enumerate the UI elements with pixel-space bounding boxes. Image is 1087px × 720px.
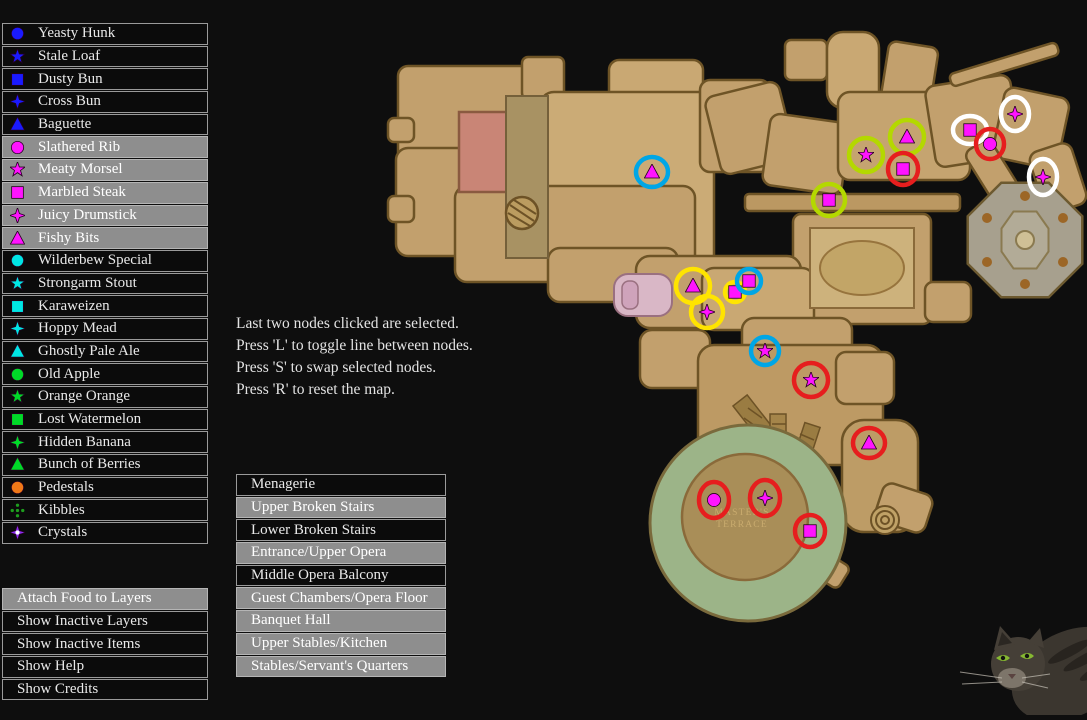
food-item-label: Old Apple bbox=[38, 367, 100, 382]
menu-item-label: Show Credits bbox=[17, 682, 98, 697]
menu-item-show-credits[interactable]: Show Credits bbox=[2, 679, 208, 701]
layer-item-label: Upper Stables/Kitchen bbox=[251, 636, 387, 651]
cross-icon bbox=[10, 94, 25, 109]
dots-icon bbox=[10, 503, 25, 518]
triangle-icon bbox=[10, 231, 25, 246]
square-icon bbox=[10, 185, 25, 200]
food-item-label: Hidden Banana bbox=[38, 435, 131, 450]
cross-icon bbox=[10, 435, 25, 450]
map-octagon-room bbox=[968, 183, 1083, 298]
layer-item-upper-broken-stairs[interactable]: Upper Broken Stairs bbox=[236, 497, 446, 519]
layer-item-label: Middle Opera Balcony bbox=[251, 568, 388, 583]
food-item-strongarm-stout[interactable]: Strongarm Stout bbox=[2, 273, 208, 295]
food-item-label: Karaweizen bbox=[38, 299, 110, 314]
cat-image bbox=[960, 608, 1087, 715]
food-item-hidden-banana[interactable]: Hidden Banana bbox=[2, 431, 208, 453]
menu-item-label: Attach Food to Layers bbox=[17, 591, 152, 606]
food-item-label: Lost Watermelon bbox=[38, 412, 141, 427]
food-item-label: Cross Bun bbox=[38, 94, 101, 109]
food-item-label: Dusty Bun bbox=[38, 72, 103, 87]
menu-item-label: Show Inactive Layers bbox=[17, 614, 148, 629]
food-item-label: Ghostly Pale Ale bbox=[38, 344, 140, 359]
food-item-bunch-of-berries[interactable]: Bunch of Berries bbox=[2, 454, 208, 476]
layer-item-menagerie[interactable]: Menagerie bbox=[236, 474, 446, 496]
food-item-label: Hoppy Mead bbox=[38, 321, 117, 336]
square-icon bbox=[10, 299, 25, 314]
circle-icon bbox=[10, 140, 25, 155]
food-item-label: Slathered Rib bbox=[38, 140, 120, 155]
layer-item-label: Banquet Hall bbox=[251, 613, 331, 628]
layer-item-guest-chambers-opera-floor[interactable]: Guest Chambers/Opera Floor bbox=[236, 587, 446, 609]
food-item-label: Stale Loaf bbox=[38, 49, 100, 64]
layer-item-label: Menagerie bbox=[251, 477, 315, 492]
food-item-label: Kibbles bbox=[38, 503, 85, 518]
map-dark-column bbox=[506, 96, 548, 258]
layer-item-upper-stables-kitchen[interactable]: Upper Stables/Kitchen bbox=[236, 633, 446, 655]
food-item-ghostly-pale-ale[interactable]: Ghostly Pale Ale bbox=[2, 341, 208, 363]
instruction-line: Press 'S' to swap selected nodes. bbox=[236, 357, 486, 379]
circle-icon bbox=[10, 480, 25, 495]
instruction-line: Press 'R' to reset the map. bbox=[236, 379, 486, 401]
layer-item-stables-servant-s-quarters[interactable]: Stables/Servant's Quarters bbox=[236, 656, 446, 678]
menu-item-attach-food-to-layers[interactable]: Attach Food to Layers bbox=[2, 588, 208, 610]
menu-item-label: Show Inactive Items bbox=[17, 637, 140, 652]
star-icon bbox=[10, 162, 25, 177]
food-item-label: Fishy Bits bbox=[38, 231, 99, 246]
food-item-label: Marbled Steak bbox=[38, 185, 126, 200]
food-item-hoppy-mead[interactable]: Hoppy Mead bbox=[2, 318, 208, 340]
food-list: Yeasty HunkStale LoafDusty BunCross BunB… bbox=[2, 23, 208, 545]
food-item-label: Orange Orange bbox=[38, 389, 130, 404]
food-item-label: Wilderbew Special bbox=[38, 253, 152, 268]
food-item-baguette[interactable]: Baguette bbox=[2, 114, 208, 136]
food-item-karaweizen[interactable]: Karaweizen bbox=[2, 295, 208, 317]
triangle-icon bbox=[10, 344, 25, 359]
food-item-juicy-drumstick[interactable]: Juicy Drumstick bbox=[2, 205, 208, 227]
sparkle-icon bbox=[10, 525, 25, 540]
menu-item-show-inactive-layers[interactable]: Show Inactive Layers bbox=[2, 611, 208, 633]
actions-menu: Attach Food to LayersShow Inactive Layer… bbox=[2, 588, 208, 701]
food-item-label: Bunch of Berries bbox=[38, 457, 140, 472]
map-ballroom-carpet bbox=[810, 228, 914, 308]
triangle-icon bbox=[10, 117, 25, 132]
food-item-kibbles[interactable]: Kibbles bbox=[2, 499, 208, 521]
food-item-meaty-morsel[interactable]: Meaty Morsel bbox=[2, 159, 208, 181]
layer-item-banquet-hall[interactable]: Banquet Hall bbox=[236, 610, 446, 632]
map-spiral-stair-icon bbox=[506, 197, 538, 229]
layer-item-entrance-upper-opera[interactable]: Entrance/Upper Opera bbox=[236, 542, 446, 564]
food-item-label: Strongarm Stout bbox=[38, 276, 137, 291]
cross-icon bbox=[10, 208, 25, 223]
food-item-label: Juicy Drumstick bbox=[38, 208, 137, 223]
food-item-wilderbew-special[interactable]: Wilderbew Special bbox=[2, 250, 208, 272]
food-item-slathered-rib[interactable]: Slathered Rib bbox=[2, 136, 208, 158]
star-icon bbox=[10, 49, 25, 64]
food-item-crystals[interactable]: Crystals bbox=[2, 522, 208, 544]
menu-item-show-help[interactable]: Show Help bbox=[2, 656, 208, 678]
map-spiral bbox=[871, 506, 899, 534]
star-icon bbox=[10, 389, 25, 404]
food-item-marbled-steak[interactable]: Marbled Steak bbox=[2, 182, 208, 204]
food-item-label: Pedestals bbox=[38, 480, 94, 495]
food-item-fishy-bits[interactable]: Fishy Bits bbox=[2, 227, 208, 249]
star-icon bbox=[10, 276, 25, 291]
map-room-pink bbox=[614, 274, 672, 316]
layer-item-lower-broken-stairs[interactable]: Lower Broken Stairs bbox=[236, 519, 446, 541]
food-item-label: Meaty Morsel bbox=[38, 162, 123, 177]
menu-item-show-inactive-items[interactable]: Show Inactive Items bbox=[2, 633, 208, 655]
square-icon bbox=[10, 412, 25, 427]
food-item-label: Crystals bbox=[38, 525, 87, 540]
layer-item-middle-opera-balcony[interactable]: Middle Opera Balcony bbox=[236, 565, 446, 587]
food-item-old-apple[interactable]: Old Apple bbox=[2, 363, 208, 385]
food-item-label: Baguette bbox=[38, 117, 91, 132]
instruction-line: Last two nodes clicked are selected. bbox=[236, 313, 486, 335]
instructions-text: Last two nodes clicked are selected.Pres… bbox=[236, 313, 486, 401]
food-item-dusty-bun[interactable]: Dusty Bun bbox=[2, 68, 208, 90]
cross-icon bbox=[10, 321, 25, 336]
terrace-label-line2: TERRACE bbox=[716, 520, 768, 530]
square-icon bbox=[10, 72, 25, 87]
layer-item-label: Upper Broken Stairs bbox=[251, 500, 374, 515]
layer-item-label: Stables/Servant's Quarters bbox=[251, 659, 408, 674]
food-item-label: Yeasty Hunk bbox=[38, 26, 115, 41]
instruction-line: Press 'L' to toggle line between nodes. bbox=[236, 335, 486, 357]
circle-icon bbox=[10, 253, 25, 268]
food-item-stale-loaf[interactable]: Stale Loaf bbox=[2, 46, 208, 68]
triangle-icon bbox=[10, 457, 25, 472]
layer-item-label: Entrance/Upper Opera bbox=[251, 545, 386, 560]
food-item-yeasty-hunk[interactable]: Yeasty Hunk bbox=[2, 23, 208, 45]
circle-icon bbox=[10, 26, 25, 41]
layer-item-label: Lower Broken Stairs bbox=[251, 523, 376, 538]
food-item-orange-orange[interactable]: Orange Orange bbox=[2, 386, 208, 408]
layers-menu: MenagerieUpper Broken StairsLower Broken… bbox=[236, 474, 446, 678]
menu-item-label: Show Help bbox=[17, 659, 84, 674]
map-masters-terrace: MASTER'S TERRACE bbox=[650, 425, 846, 621]
food-item-cross-bun[interactable]: Cross Bun bbox=[2, 91, 208, 113]
layer-item-label: Guest Chambers/Opera Floor bbox=[251, 591, 428, 606]
circle-icon bbox=[10, 367, 25, 382]
food-item-pedestals[interactable]: Pedestals bbox=[2, 477, 208, 499]
food-item-lost-watermelon[interactable]: Lost Watermelon bbox=[2, 409, 208, 431]
